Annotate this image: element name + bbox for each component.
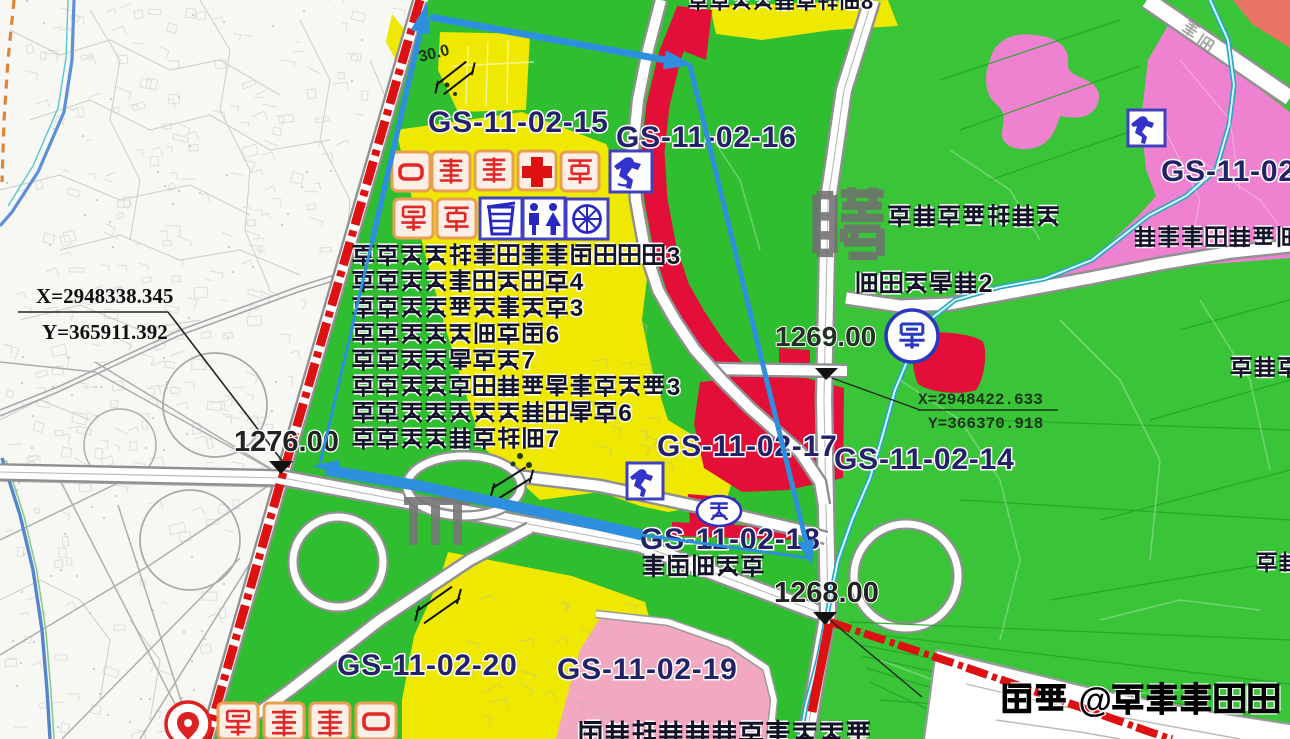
svg-text:GS-11-02-17: GS-11-02-17 [657,430,838,463]
svg-text:7: 7 [521,348,535,375]
svg-text:1268.00: 1268.00 [774,577,879,609]
svg-text:@: @ [1079,681,1112,719]
svg-text:GS-11-02-15: GS-11-02-15 [428,106,609,139]
svg-text:7: 7 [546,426,560,453]
svg-text:GS-11-02-20: GS-11-02-20 [337,649,518,682]
svg-text:8: 8 [861,0,873,14]
svg-text:6: 6 [618,400,632,427]
svg-text:2: 2 [979,270,993,298]
svg-text:3: 3 [667,374,681,401]
svg-text:4: 4 [570,269,584,296]
svg-text:Y=366370.918: Y=366370.918 [928,415,1043,433]
svg-text:1269.00: 1269.00 [775,321,876,352]
svg-text:6: 6 [546,321,560,348]
svg-text:X=2948338.345: X=2948338.345 [36,284,173,308]
svg-text:GS-11-02-14: GS-11-02-14 [834,443,1015,476]
svg-text:3: 3 [570,295,584,322]
svg-text:X=2948422.633: X=2948422.633 [918,391,1043,409]
svg-text:3: 3 [667,243,681,270]
svg-text:GS-11-02-19: GS-11-02-19 [557,653,738,686]
svg-text:GS-11-02-1: GS-11-02-1 [1161,155,1290,188]
svg-text:Y=365911.392: Y=365911.392 [42,320,168,344]
